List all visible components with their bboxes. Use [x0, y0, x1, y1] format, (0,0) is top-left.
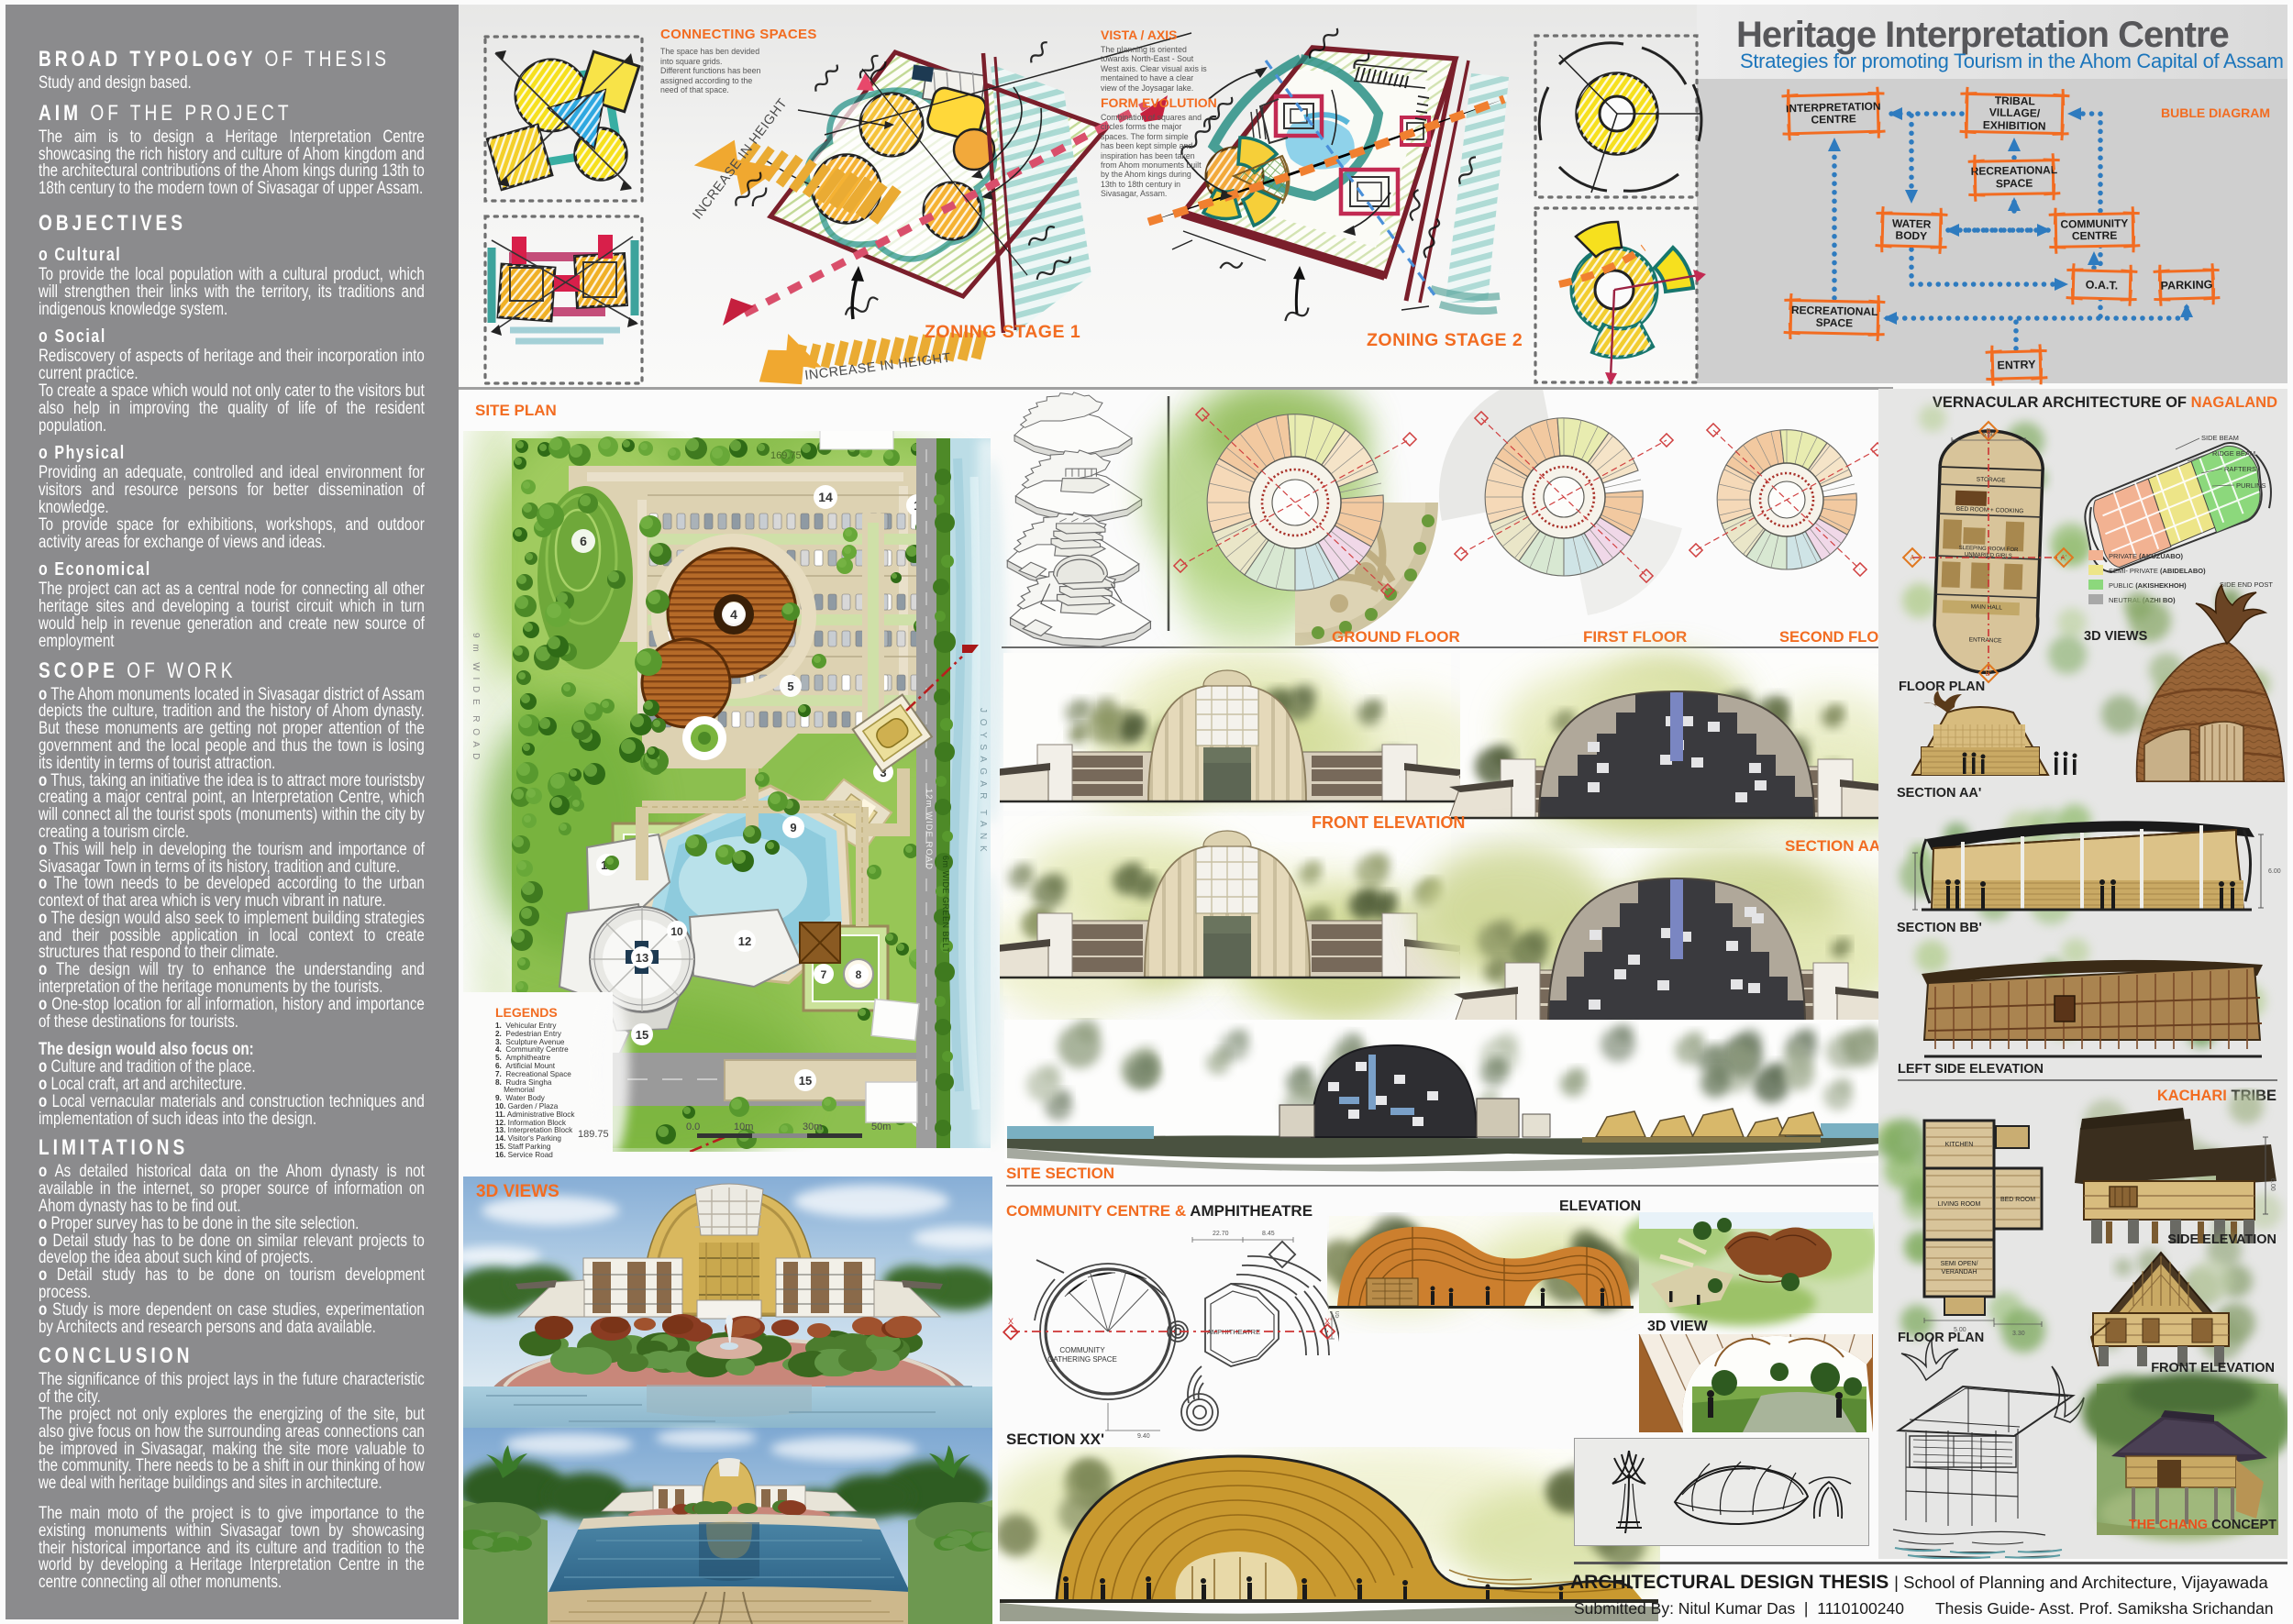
svg-text:22.70: 22.70 — [1213, 1231, 1229, 1237]
svg-text:5: 5 — [787, 679, 793, 693]
svg-text:0.0: 0.0 — [686, 1121, 700, 1132]
svg-text:MAIN HALL: MAIN HALL — [1971, 603, 2003, 611]
svg-text:10m: 10m — [734, 1121, 753, 1132]
svg-text:STORAGE: STORAGE — [1977, 476, 2007, 483]
svg-text:SECOND FLOOR: SECOND FLOOR — [1779, 629, 1893, 646]
svg-text:30m: 30m — [803, 1121, 822, 1132]
svg-text:FRONT ELEVATION: FRONT ELEVATION — [1312, 813, 1465, 832]
svg-text:PUBLIC (AKISHEKHOH): PUBLIC (AKISHEKHOH) — [2109, 581, 2187, 590]
svg-text:GATHERING SPACE: GATHERING SPACE — [1047, 1355, 1117, 1364]
svg-text:6.50: 6.50 — [1982, 432, 1995, 438]
svg-text:6.00: 6.00 — [2268, 868, 2281, 875]
svg-text:8: 8 — [856, 968, 862, 981]
svg-text:BED ROOM: BED ROOM — [2000, 1197, 2035, 1203]
svg-text:ENTRANCE: ENTRANCE — [1969, 636, 2003, 644]
svg-text:GROUND FLOOR: GROUND FLOOR — [1332, 628, 1460, 646]
svg-text:A': A' — [2061, 554, 2067, 562]
svg-text:4: 4 — [730, 607, 737, 622]
svg-text:10: 10 — [670, 925, 683, 938]
svg-text:6.00: 6.00 — [2269, 1178, 2276, 1191]
svg-text:RAFTERS: RAFTERS — [2224, 465, 2256, 473]
svg-text:PURLINS: PURLINS — [2236, 481, 2266, 490]
svg-text:A: A — [1910, 554, 1915, 562]
svg-text:SEMI OPEN/: SEMI OPEN/ — [1941, 1261, 1978, 1267]
svg-text:ZONING STAGE 1: ZONING STAGE 1 — [925, 322, 1080, 342]
svg-text:ZONING STAGE 2: ZONING STAGE 2 — [1367, 330, 1523, 350]
svg-text:SIDE END POST: SIDE END POST — [2220, 580, 2273, 589]
svg-text:7: 7 — [821, 968, 827, 981]
svg-text:KITCHEN: KITCHEN — [1945, 1142, 1974, 1148]
svg-text:RIDGE BEAM: RIDGE BEAM — [2212, 449, 2255, 458]
svg-text:LIVING ROOM: LIVING ROOM — [1938, 1201, 1981, 1208]
svg-text:169.75: 169.75 — [770, 450, 802, 461]
svg-text:13: 13 — [636, 951, 648, 965]
svg-text:6: 6 — [580, 534, 587, 548]
svg-text:9: 9 — [790, 821, 796, 834]
svg-text:15: 15 — [799, 1074, 812, 1088]
svg-text:VERANDAH: VERANDAH — [1942, 1269, 1977, 1276]
svg-text:COMMUNITY: COMMUNITY — [1059, 1346, 1105, 1354]
svg-text:B': B' — [1986, 669, 1992, 678]
svg-text:SECTION AA': SECTION AA' — [1785, 837, 1884, 855]
svg-text:X: X — [1008, 1317, 1014, 1326]
svg-text:14: 14 — [818, 490, 833, 504]
svg-text:9.40: 9.40 — [1137, 1433, 1150, 1440]
svg-text:12: 12 — [738, 934, 751, 948]
svg-text:SEMI- PRIVATE (ABIDELABO): SEMI- PRIVATE (ABIDELABO) — [2109, 567, 2206, 575]
svg-text:SIDE BEAM: SIDE BEAM — [2201, 434, 2239, 442]
svg-text:3.30: 3.30 — [2012, 1331, 2025, 1337]
svg-text:FIRST FLOOR: FIRST FLOOR — [1583, 628, 1687, 646]
svg-text:8.45: 8.45 — [1262, 1231, 1275, 1237]
svg-text:PRIVATE (AKUZUABO): PRIVATE (AKUZUABO) — [2109, 552, 2183, 560]
svg-text:50m: 50m — [871, 1121, 891, 1132]
